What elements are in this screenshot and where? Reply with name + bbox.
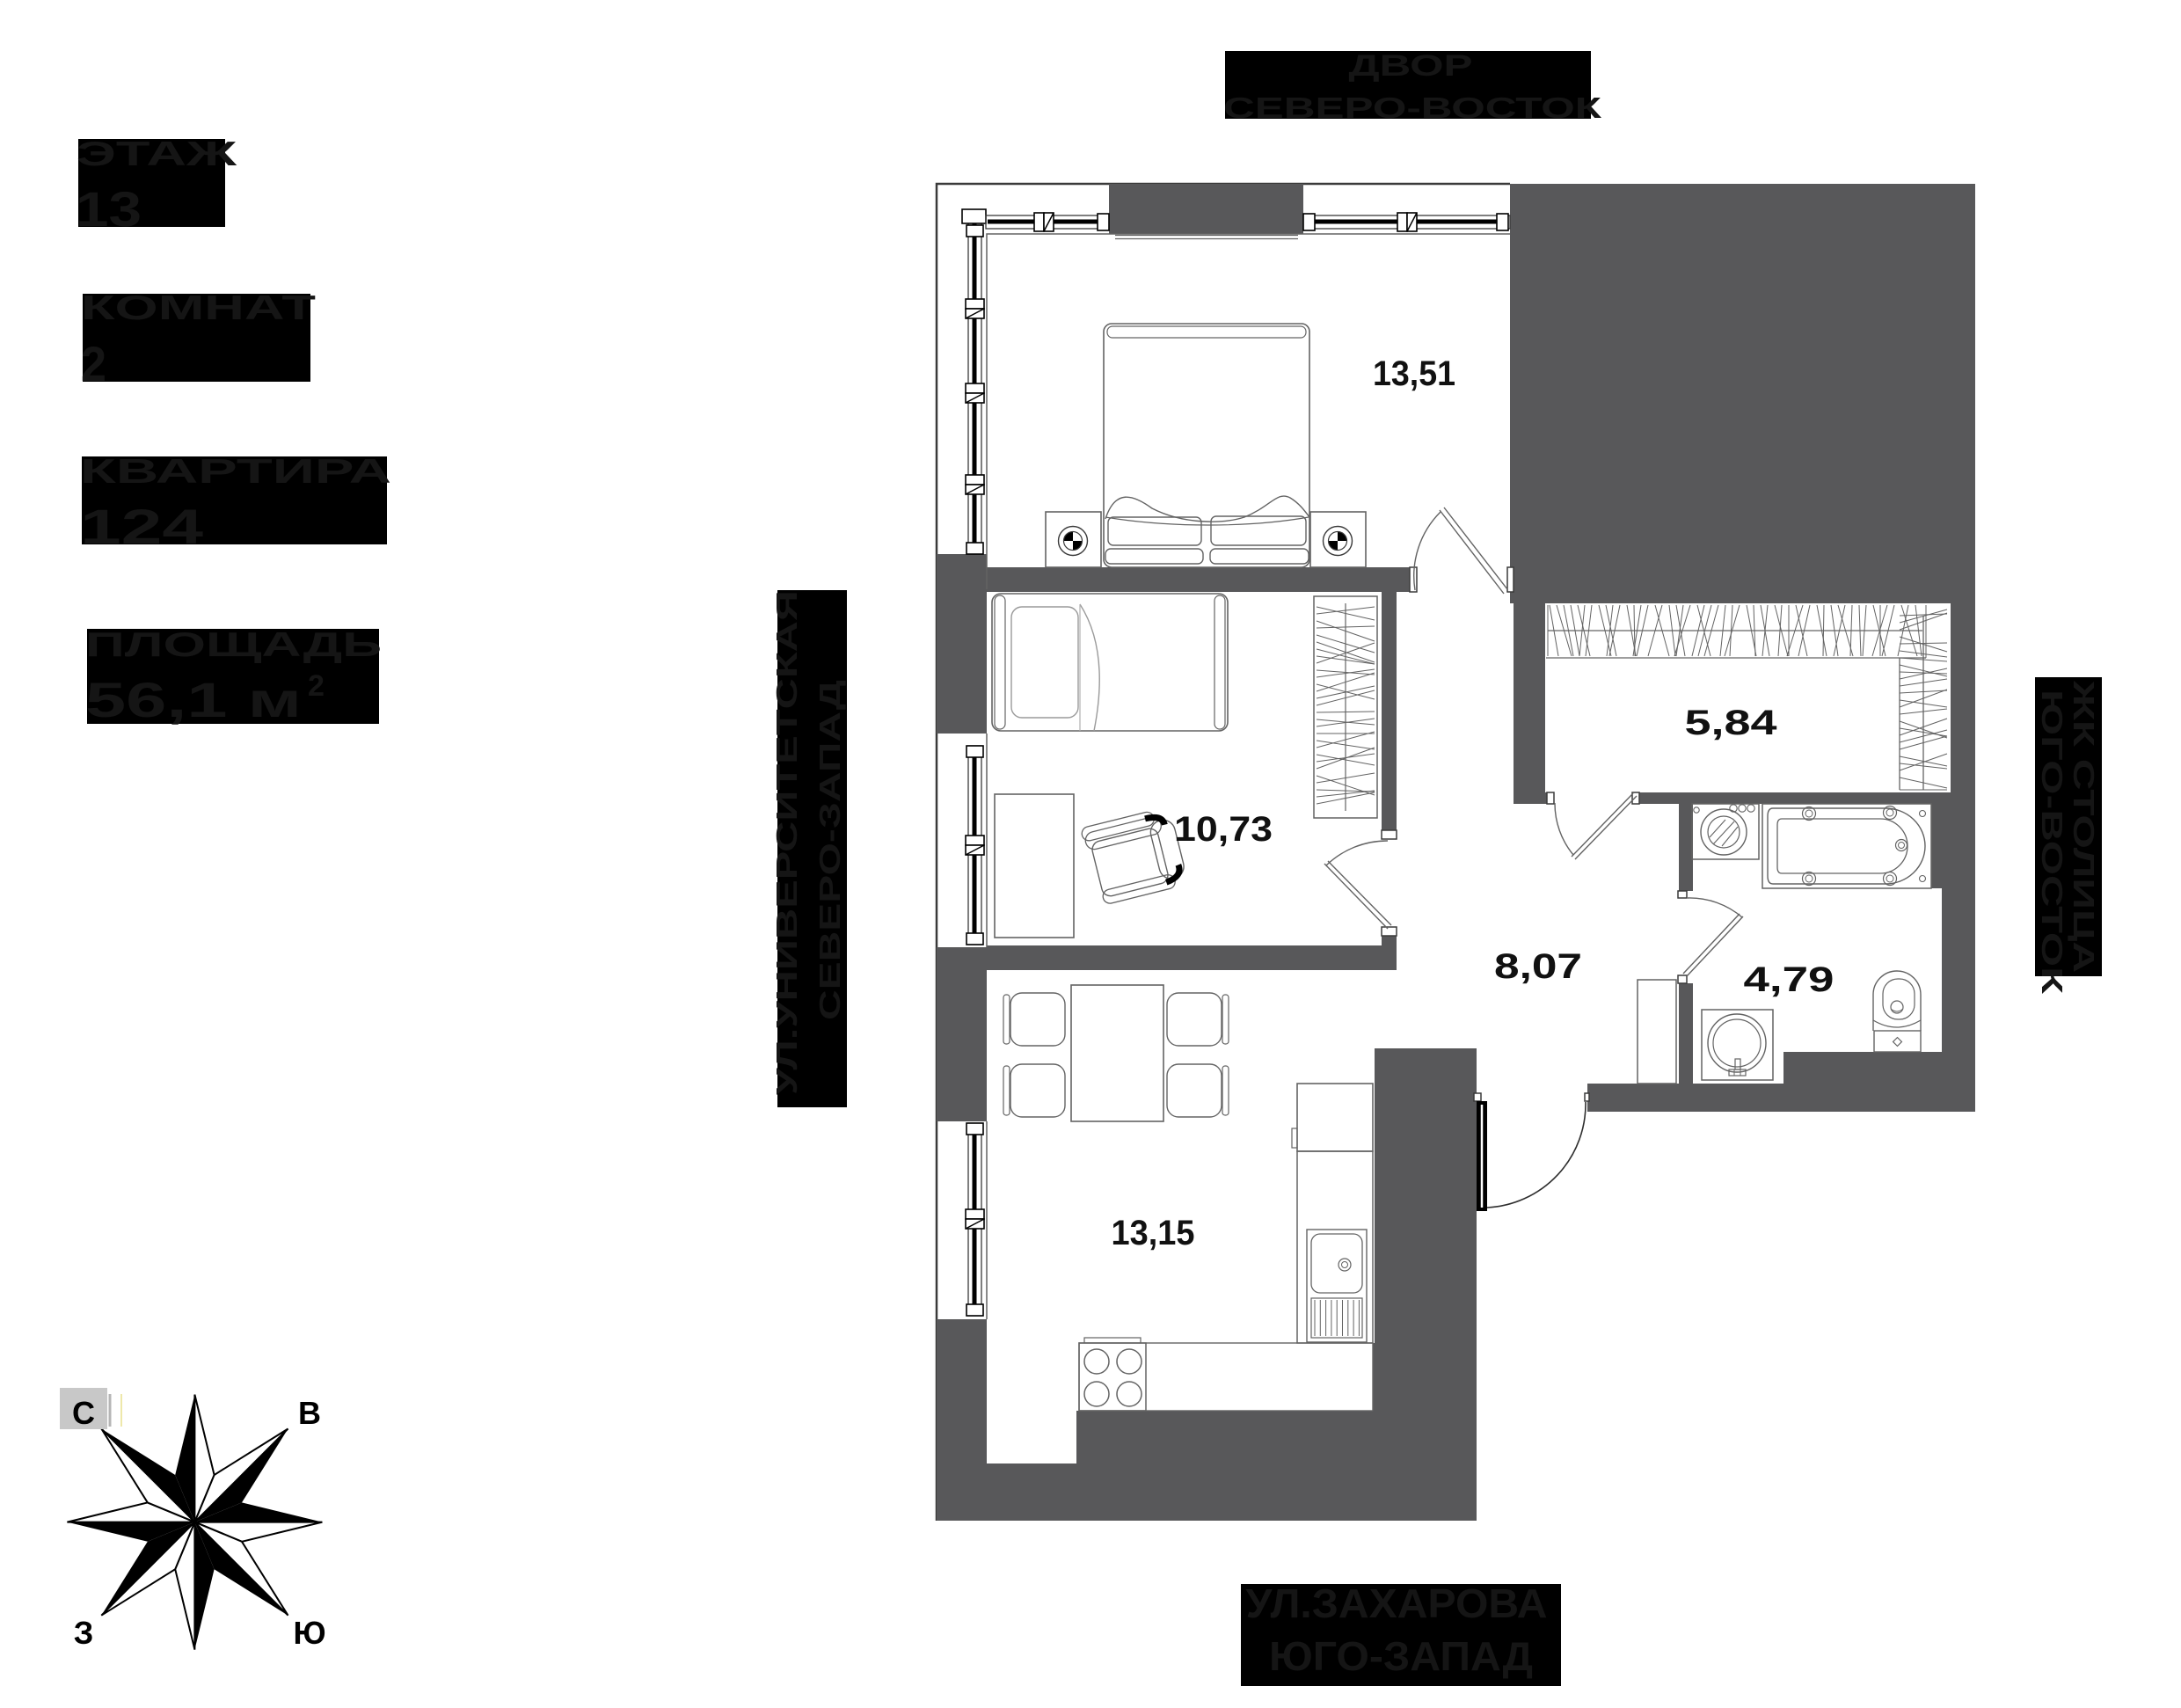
svg-text:З: З	[74, 1615, 94, 1651]
svg-text:ЖК СТОЛИЦА: ЖК СТОЛИЦА	[2068, 679, 2100, 973]
svg-text:56,1 м: 56,1 м	[85, 672, 302, 727]
svg-text:4,79: 4,79	[1744, 960, 1835, 999]
svg-text:8,07: 8,07	[1494, 947, 1582, 986]
svg-text:13,15: 13,15	[1112, 1214, 1195, 1252]
svg-text:ЮГО-ЗАПАД: ЮГО-ЗАПАД	[1269, 1633, 1533, 1679]
svg-text:2: 2	[81, 336, 106, 391]
svg-text:5,84: 5,84	[1685, 704, 1778, 742]
svg-text:СЕВЕРО-ЗАПАД: СЕВЕРО-ЗАПАД	[813, 680, 846, 1020]
svg-text:124: 124	[80, 499, 203, 554]
svg-text:ЭТАЖ: ЭТАЖ	[77, 135, 237, 173]
svg-text:КОМНАТ: КОМНАТ	[81, 289, 316, 327]
svg-text:В: В	[298, 1395, 321, 1431]
svg-text:КВАРТИРА: КВАРТИРА	[80, 453, 391, 491]
svg-text:2: 2	[308, 669, 325, 703]
svg-text:СЕВЕРО-ВОСТОК: СЕВЕРО-ВОСТОК	[1223, 91, 1602, 124]
svg-text:13: 13	[76, 181, 142, 237]
svg-text:УЛ.УНИВЕРСИТЕТСКАЯ: УЛ.УНИВЕРСИТЕТСКАЯ	[770, 590, 803, 1095]
svg-text:ПЛОЩАДЬ: ПЛОЩАДЬ	[85, 626, 382, 664]
svg-text:Ю: Ю	[293, 1615, 325, 1651]
svg-text:13,51: 13,51	[1373, 354, 1455, 393]
svg-text:ЮГО-ВОСТОК: ЮГО-ВОСТОК	[2036, 690, 2068, 995]
svg-text:УЛ.ЗАХАРОВА: УЛ.ЗАХАРОВА	[1246, 1580, 1548, 1626]
svg-text:10,73: 10,73	[1174, 810, 1273, 849]
svg-text:ДВОР: ДВОР	[1349, 49, 1473, 83]
svg-text:С: С	[72, 1395, 95, 1431]
